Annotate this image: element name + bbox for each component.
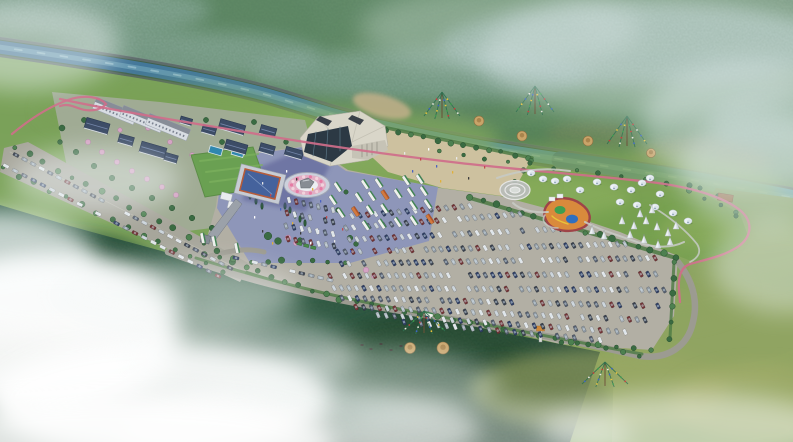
person: [456, 157, 457, 160]
hedge-tree: [13, 146, 17, 150]
flag: [408, 324, 410, 326]
grazing-animal: [360, 344, 363, 346]
dome-tent: [593, 179, 602, 186]
camp-blob: [566, 215, 578, 224]
dome-tent: [633, 202, 642, 209]
person: [412, 170, 413, 173]
hut-top: [477, 118, 482, 123]
flag: [427, 322, 429, 324]
hedge-tree: [530, 213, 536, 219]
cypress-tree: [304, 220, 307, 227]
dome-door: [579, 191, 581, 193]
person: [420, 158, 421, 161]
flag: [619, 142, 621, 144]
flag: [405, 328, 407, 330]
person: [296, 178, 297, 181]
hut-top: [520, 133, 525, 138]
flower-dot: [291, 180, 294, 183]
hedge-tree: [575, 341, 580, 346]
person: [320, 200, 321, 203]
flag: [439, 99, 441, 101]
dome-door: [659, 195, 661, 197]
tree: [219, 139, 224, 144]
person: [286, 170, 287, 173]
hedge-tree: [670, 304, 676, 310]
hedge-tree: [637, 354, 641, 358]
dome-door: [554, 182, 556, 184]
flag: [454, 108, 456, 110]
flag: [620, 124, 622, 126]
flag: [529, 105, 531, 107]
flower-dot: [309, 192, 312, 195]
dome-door: [619, 203, 621, 205]
flag: [521, 103, 523, 105]
tree: [189, 215, 195, 221]
blossom-tree: [118, 128, 122, 132]
person: [468, 177, 469, 180]
hedge-tree: [435, 314, 441, 320]
aerial-rendering-stage: [0, 0, 793, 442]
hedge-tree: [583, 231, 588, 236]
dome-door: [613, 188, 615, 190]
hedge-tree: [141, 211, 146, 216]
flag: [584, 381, 586, 383]
flag: [425, 112, 427, 114]
tree: [59, 125, 65, 131]
hedge-tree: [670, 290, 676, 296]
hedge-tree: [493, 201, 500, 208]
flag: [436, 110, 438, 112]
flower-dot: [296, 190, 299, 193]
hedge-tree: [672, 260, 677, 265]
hedge-tree: [408, 132, 413, 137]
layer-emblem: [284, 173, 330, 198]
dome-door: [687, 222, 689, 224]
hedge-tree: [649, 348, 654, 353]
flag: [632, 124, 634, 126]
dome-door: [636, 206, 638, 208]
blossom-tree: [363, 267, 369, 273]
dome-tent: [610, 184, 619, 191]
hedge-tree: [482, 157, 486, 161]
flag: [421, 317, 423, 319]
thatched-hut: [583, 136, 593, 146]
person: [280, 208, 281, 211]
dome-door: [654, 208, 656, 210]
hedge-tree: [278, 257, 284, 263]
flag: [593, 372, 595, 374]
flag: [616, 129, 618, 131]
hedge-tree: [614, 345, 618, 349]
flag: [450, 103, 452, 105]
flag: [598, 379, 600, 381]
dome-tent: [684, 218, 693, 225]
hedge-tree: [460, 143, 465, 148]
hedge-tree: [568, 339, 574, 345]
flag: [621, 137, 623, 139]
flower-dot: [291, 187, 294, 190]
tree: [264, 232, 272, 240]
dome-tent: [576, 187, 585, 194]
hedge-tree: [297, 260, 302, 265]
tree: [275, 238, 282, 245]
flower-dot: [321, 183, 324, 186]
person: [428, 148, 429, 151]
person: [342, 228, 343, 231]
dome-tent: [656, 191, 665, 198]
flag: [616, 372, 618, 374]
hedge-tree: [324, 291, 330, 297]
hut-top: [440, 345, 445, 350]
flag: [541, 111, 543, 113]
hedge-tree: [559, 340, 564, 345]
flag: [435, 115, 437, 117]
person: [452, 171, 453, 174]
dome-door: [542, 180, 544, 182]
flag: [457, 112, 459, 114]
hedge-tree: [671, 275, 677, 281]
person: [272, 242, 273, 245]
hedge-tree: [487, 148, 492, 153]
person: [300, 232, 301, 235]
person: [312, 188, 313, 191]
hedge-tree: [667, 337, 672, 342]
grazing-animal: [379, 343, 382, 345]
tree: [344, 190, 348, 194]
flag: [434, 320, 436, 322]
flag: [551, 108, 553, 110]
hedge-tree: [586, 342, 591, 347]
camp-rect: [557, 194, 563, 198]
person: [484, 166, 485, 169]
hedge-tree: [661, 250, 668, 257]
tree: [58, 140, 63, 145]
flower-dot: [302, 175, 305, 178]
flag: [600, 374, 602, 376]
tree: [169, 205, 175, 211]
flag: [609, 374, 611, 376]
hedge-tree: [466, 194, 472, 200]
flag: [432, 103, 434, 105]
hedge-tree: [421, 134, 426, 139]
hedge-tree: [631, 346, 636, 351]
flag: [446, 110, 448, 112]
hedge-tree: [188, 254, 192, 258]
flag: [622, 131, 624, 133]
flag: [609, 140, 611, 142]
flower-dot: [315, 177, 318, 180]
hedge-tree: [310, 258, 315, 263]
person: [310, 242, 311, 245]
dome-tent: [539, 176, 548, 183]
flag: [588, 377, 590, 379]
camp-rect: [549, 197, 555, 201]
flower-dot: [302, 192, 305, 195]
tree: [251, 119, 256, 124]
flag: [632, 137, 634, 139]
flag: [426, 317, 428, 319]
hedge-tree: [170, 225, 176, 231]
hedge-tree: [435, 138, 441, 144]
hedge-tree: [513, 153, 518, 158]
hedge-tree: [499, 149, 503, 153]
flower-dot: [319, 180, 322, 183]
hedge-tree: [647, 247, 653, 253]
flag: [624, 381, 626, 383]
person: [436, 165, 437, 168]
dome-tent: [616, 199, 625, 206]
hedge-tree: [326, 260, 330, 264]
flag: [416, 330, 418, 332]
flag: [633, 142, 635, 144]
flag: [517, 108, 519, 110]
blossom-tree: [173, 192, 178, 197]
flag: [443, 99, 445, 101]
dome-door: [596, 183, 598, 185]
hedge-tree: [528, 161, 532, 165]
flag: [429, 326, 431, 328]
dome-door: [530, 174, 532, 176]
flag: [624, 124, 626, 126]
hedge-tree: [506, 160, 509, 163]
hedge-tree: [462, 153, 466, 157]
flag: [417, 326, 419, 328]
hedge-tree: [27, 151, 33, 157]
thatched-hut: [474, 116, 484, 126]
flag: [447, 115, 449, 117]
flag: [612, 383, 614, 385]
clouds-blob: [118, 315, 358, 395]
grazing-animal: [399, 345, 402, 347]
hedge-tree: [437, 149, 441, 153]
flag: [612, 135, 614, 137]
blossom-tree: [168, 140, 173, 145]
hedge-tree: [186, 234, 192, 240]
person: [404, 152, 405, 155]
person: [292, 222, 293, 225]
person: [326, 216, 327, 219]
flag: [539, 105, 541, 107]
person: [440, 180, 441, 183]
thatched-hut: [437, 342, 449, 354]
flag: [445, 105, 447, 107]
flag: [611, 368, 613, 370]
flag: [620, 377, 622, 379]
flag: [596, 383, 598, 385]
flag: [442, 328, 444, 330]
dome-tent: [646, 175, 655, 182]
hedge-tree: [595, 171, 600, 176]
person: [262, 182, 263, 185]
flag: [429, 316, 431, 318]
flag: [417, 316, 419, 318]
hedge-tree: [481, 198, 486, 203]
dome-tent: [627, 187, 636, 194]
flag: [438, 324, 440, 326]
flower-dot: [309, 175, 312, 178]
hedge-tree: [448, 140, 454, 146]
hedge-tree: [157, 219, 162, 224]
hedge-tree: [620, 349, 625, 354]
dome-tent: [638, 180, 647, 187]
camp-blob: [555, 206, 566, 214]
tree: [203, 117, 208, 122]
flag: [438, 105, 440, 107]
flag: [527, 111, 529, 113]
hedge-tree: [575, 169, 579, 173]
flower-dot: [319, 187, 322, 190]
hedge-tree: [507, 207, 512, 212]
flower-dot: [315, 190, 318, 193]
flag: [630, 131, 632, 133]
hut-top: [586, 138, 591, 143]
hedge-tree: [474, 145, 479, 150]
hedge-tree: [296, 282, 301, 287]
flag: [636, 129, 638, 131]
flag: [629, 124, 631, 126]
hedge-tree: [396, 130, 401, 135]
person: [270, 194, 271, 197]
dome-door: [672, 214, 674, 216]
dome-door: [649, 179, 651, 181]
flag: [413, 320, 415, 322]
thatched-hut: [517, 131, 527, 141]
hedge-tree: [218, 255, 222, 259]
dome-tent: [527, 170, 536, 177]
clouds-blob: [10, 148, 180, 212]
flag: [607, 369, 609, 371]
flag: [436, 98, 438, 100]
flag: [611, 379, 613, 381]
dome-door: [566, 180, 568, 182]
dome-door: [630, 191, 632, 193]
person: [262, 230, 263, 233]
dome-tent: [669, 210, 678, 217]
blossom-tree: [85, 139, 90, 144]
person: [334, 240, 335, 243]
flag: [601, 369, 603, 371]
person: [318, 230, 319, 233]
person: [350, 250, 351, 253]
hedge-tree: [604, 346, 609, 351]
dome-tent: [551, 178, 560, 185]
hedge-tree: [636, 244, 641, 249]
flower-dot: [290, 183, 293, 186]
flag: [597, 368, 599, 370]
hedge-tree: [214, 248, 220, 254]
dome-door: [641, 184, 643, 186]
flag: [429, 108, 431, 110]
hedge-tree: [609, 235, 616, 242]
camp-blob: [510, 187, 520, 193]
hedge-tree: [310, 289, 314, 293]
aerial-site-rendering: [0, 0, 793, 442]
flag: [419, 322, 421, 324]
dome-tent: [563, 176, 572, 183]
person: [254, 216, 255, 219]
hedge-tree: [669, 320, 673, 324]
flag: [431, 330, 433, 332]
flag: [447, 98, 449, 100]
